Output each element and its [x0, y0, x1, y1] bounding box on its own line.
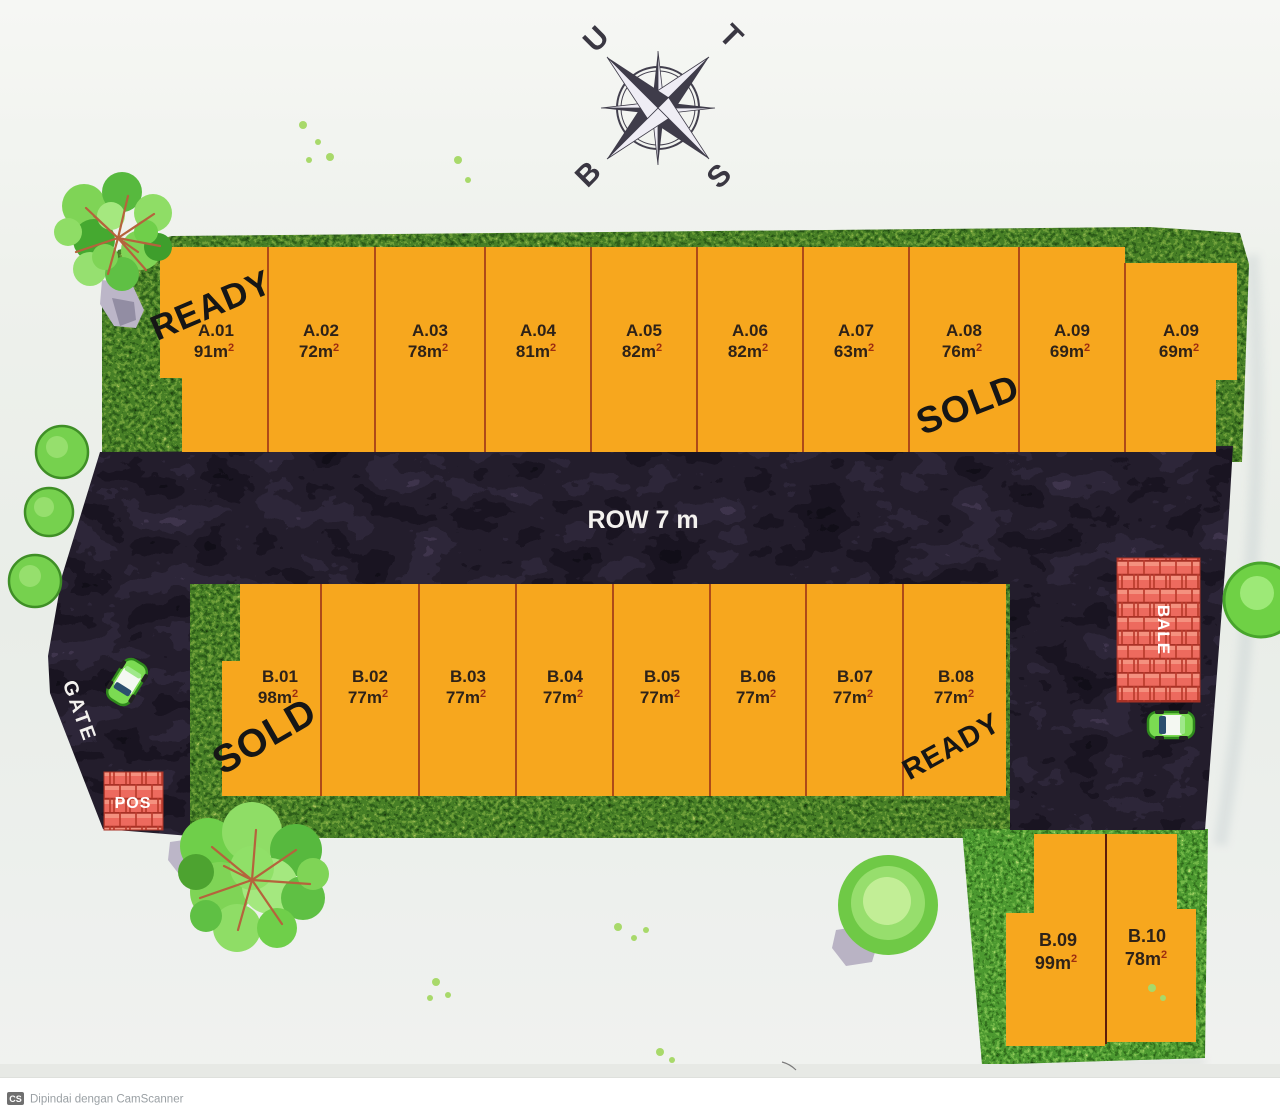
- svg-text:A.09: A.09: [1163, 321, 1199, 340]
- svg-text:99m2: 99m2: [1035, 953, 1077, 973]
- svg-text:CS: CS: [9, 1094, 22, 1104]
- svg-text:A.09: A.09: [1054, 321, 1090, 340]
- svg-text:A.03: A.03: [412, 321, 448, 340]
- svg-text:A.07: A.07: [838, 321, 874, 340]
- svg-text:B.05: B.05: [644, 667, 680, 686]
- svg-text:Dipindai dengan CamScanner: Dipindai dengan CamScanner: [30, 1094, 184, 1106]
- svg-text:ROW 7 m: ROW 7 m: [587, 506, 698, 534]
- svg-text:B.08: B.08: [938, 667, 974, 686]
- svg-text:B.09: B.09: [1039, 930, 1077, 950]
- svg-text:A.02: A.02: [303, 321, 339, 340]
- svg-text:B.07: B.07: [837, 667, 873, 686]
- svg-text:POS: POS: [115, 795, 152, 812]
- svg-text:B.02: B.02: [352, 667, 388, 686]
- svg-text:B.06: B.06: [740, 667, 776, 686]
- svg-text:B.04: B.04: [547, 667, 583, 686]
- svg-text:A.05: A.05: [626, 321, 662, 340]
- svg-text:BALE: BALE: [1154, 605, 1173, 655]
- svg-text:B.03: B.03: [450, 667, 486, 686]
- svg-text:B.01: B.01: [262, 667, 298, 686]
- svg-text:A.08: A.08: [946, 321, 982, 340]
- svg-text:A.04: A.04: [520, 321, 556, 340]
- svg-text:A.06: A.06: [732, 321, 768, 340]
- svg-text:78m2: 78m2: [1125, 949, 1167, 969]
- svg-text:B.10: B.10: [1128, 926, 1166, 946]
